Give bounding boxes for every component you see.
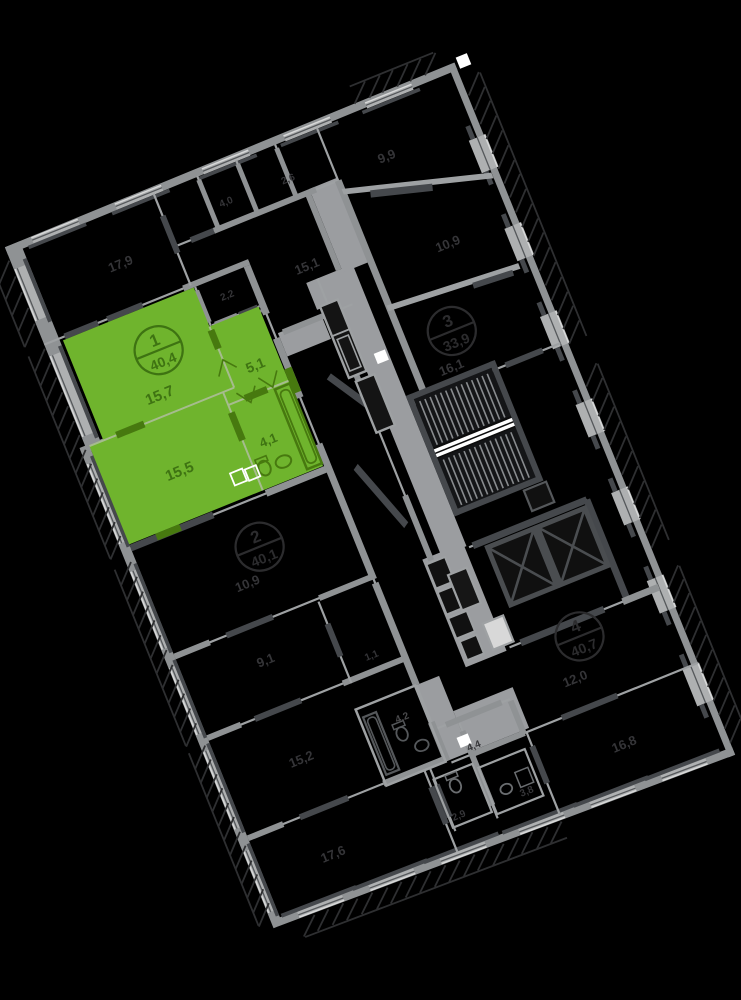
svg-text:17,9: 17,9 [106, 252, 135, 275]
svg-text:4,2: 4,2 [394, 710, 411, 726]
svg-text:15,2: 15,2 [287, 747, 316, 770]
svg-text:16,8: 16,8 [610, 732, 639, 755]
svg-text:2: 2 [248, 526, 264, 547]
svg-text:12,0: 12,0 [560, 667, 589, 690]
svg-text:9,9: 9,9 [375, 146, 397, 167]
svg-text:10,9: 10,9 [433, 232, 462, 255]
svg-text:3: 3 [440, 311, 456, 332]
svg-text:9,1: 9,1 [254, 650, 276, 671]
svg-text:15,1: 15,1 [292, 254, 321, 277]
svg-text:10,9: 10,9 [233, 572, 262, 595]
svg-text:2,6: 2,6 [280, 172, 297, 188]
svg-text:2,9: 2,9 [451, 808, 468, 824]
svg-text:17,6: 17,6 [319, 842, 348, 865]
svg-text:4,0: 4,0 [218, 195, 235, 211]
svg-text:2,2: 2,2 [219, 288, 236, 304]
svg-text:1,1: 1,1 [363, 648, 380, 664]
